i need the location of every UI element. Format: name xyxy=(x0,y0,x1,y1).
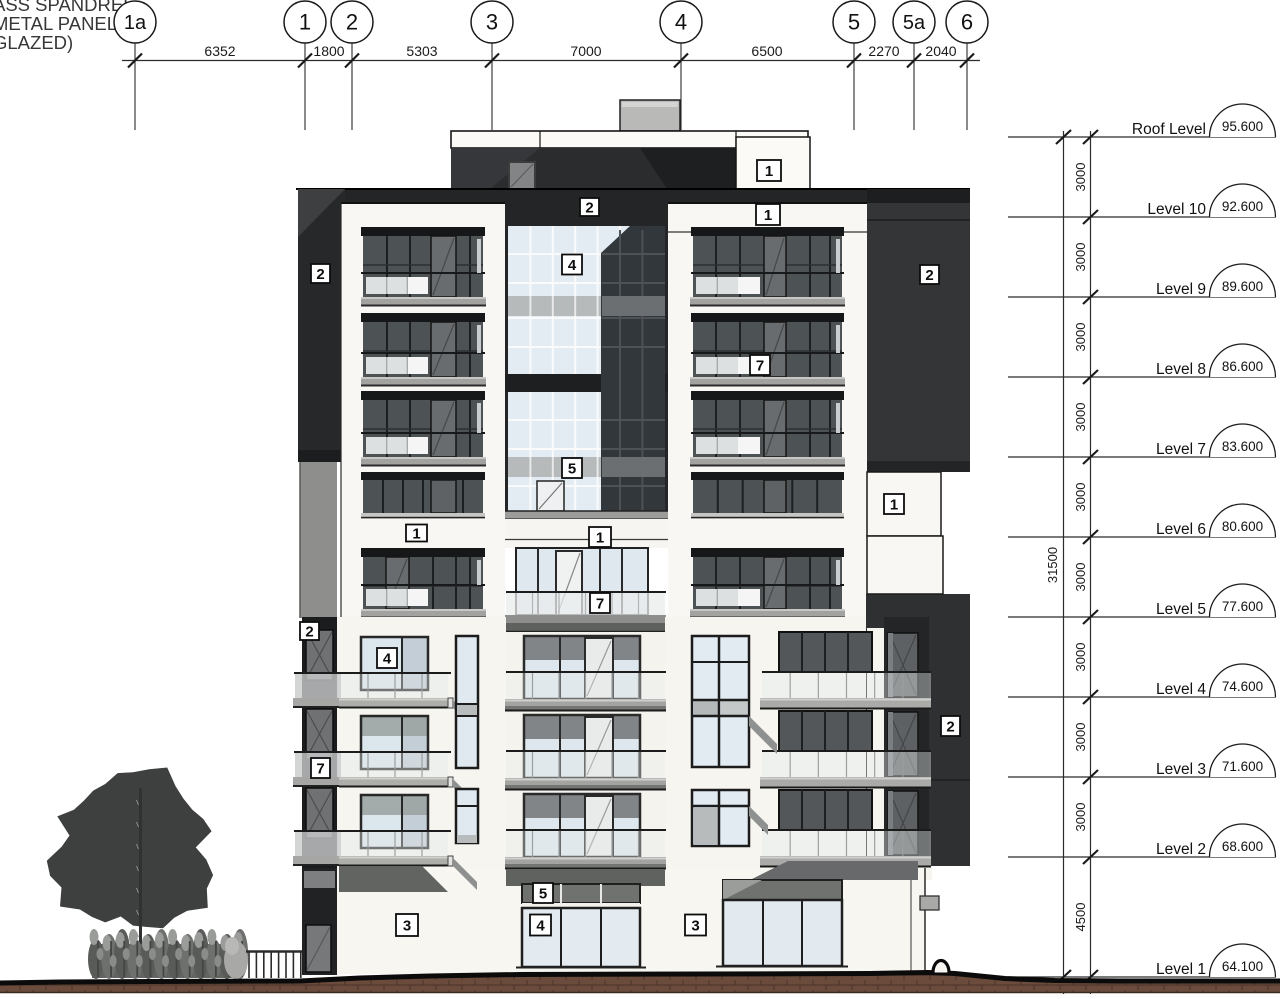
svg-text:31500: 31500 xyxy=(1045,547,1060,583)
svg-text:Level 9: Level 9 xyxy=(1156,281,1206,298)
svg-text:Level 6: Level 6 xyxy=(1156,521,1206,538)
svg-text:1: 1 xyxy=(764,207,772,224)
svg-text:5a: 5a xyxy=(903,12,926,34)
svg-text:4: 4 xyxy=(536,917,545,934)
svg-text:2270: 2270 xyxy=(868,43,899,59)
svg-text:68.600: 68.600 xyxy=(1222,839,1263,854)
svg-text:3: 3 xyxy=(486,10,498,35)
svg-text:3000: 3000 xyxy=(1073,643,1088,672)
svg-text:83.600: 83.600 xyxy=(1222,439,1263,454)
svg-text:3: 3 xyxy=(403,917,411,934)
svg-text:GLAZED): GLAZED) xyxy=(0,32,73,53)
svg-text:2: 2 xyxy=(346,10,358,35)
svg-text:Level 1: Level 1 xyxy=(1156,961,1206,978)
svg-text:95.600: 95.600 xyxy=(1222,119,1263,134)
svg-text:2: 2 xyxy=(925,267,933,284)
svg-text:Level 4: Level 4 xyxy=(1156,681,1206,698)
svg-text:6: 6 xyxy=(961,10,973,35)
svg-text:3: 3 xyxy=(691,917,699,934)
svg-text:2: 2 xyxy=(585,199,593,216)
svg-text:3000: 3000 xyxy=(1073,323,1088,352)
svg-text:64.100: 64.100 xyxy=(1222,959,1263,974)
svg-text:6500: 6500 xyxy=(751,43,782,59)
svg-text:Level 2: Level 2 xyxy=(1156,841,1206,858)
svg-text:3000: 3000 xyxy=(1073,483,1088,512)
svg-text:3000: 3000 xyxy=(1073,563,1088,592)
svg-text:74.600: 74.600 xyxy=(1222,679,1263,694)
svg-text:1: 1 xyxy=(596,529,604,546)
svg-text:5: 5 xyxy=(539,885,547,902)
svg-text:7: 7 xyxy=(756,357,764,374)
svg-text:3000: 3000 xyxy=(1073,803,1088,832)
svg-text:1: 1 xyxy=(890,496,898,513)
svg-text:Roof Level: Roof Level xyxy=(1132,121,1206,138)
svg-text:7: 7 xyxy=(316,760,324,777)
svg-text:2040: 2040 xyxy=(925,43,956,59)
svg-text:1800: 1800 xyxy=(313,43,344,59)
svg-text:5: 5 xyxy=(848,10,860,35)
svg-text:1: 1 xyxy=(412,525,420,542)
svg-text:1: 1 xyxy=(765,163,773,180)
svg-text:3000: 3000 xyxy=(1073,243,1088,272)
svg-text:80.600: 80.600 xyxy=(1222,519,1263,534)
svg-text:3000: 3000 xyxy=(1073,163,1088,192)
svg-text:1: 1 xyxy=(299,10,311,35)
svg-text:1a: 1a xyxy=(124,12,147,34)
svg-text:Level 5: Level 5 xyxy=(1156,601,1206,618)
svg-text:3000: 3000 xyxy=(1073,723,1088,752)
svg-text:4: 4 xyxy=(383,650,392,667)
svg-text:Level 3: Level 3 xyxy=(1156,761,1206,778)
svg-text:2: 2 xyxy=(946,718,954,735)
svg-text:7: 7 xyxy=(596,595,604,612)
svg-text:3000: 3000 xyxy=(1073,403,1088,432)
svg-text:Level 7: Level 7 xyxy=(1156,441,1206,458)
svg-text:2: 2 xyxy=(316,266,324,283)
svg-text:Level 8: Level 8 xyxy=(1156,361,1206,378)
svg-text:7000: 7000 xyxy=(570,43,601,59)
svg-text:86.600: 86.600 xyxy=(1222,359,1263,374)
svg-text:5303: 5303 xyxy=(406,43,437,59)
svg-text:4: 4 xyxy=(568,257,577,274)
svg-text:89.600: 89.600 xyxy=(1222,279,1263,294)
svg-text:4500: 4500 xyxy=(1073,903,1088,932)
svg-text:2: 2 xyxy=(305,623,313,640)
svg-text:77.600: 77.600 xyxy=(1222,599,1263,614)
svg-text:Level 10: Level 10 xyxy=(1147,201,1206,218)
svg-text:71.600: 71.600 xyxy=(1222,759,1263,774)
svg-text:5: 5 xyxy=(568,460,576,477)
svg-text:METAL PANEL: METAL PANEL xyxy=(0,13,117,34)
svg-text:4: 4 xyxy=(675,10,687,35)
svg-text:6352: 6352 xyxy=(204,43,235,59)
svg-text:92.600: 92.600 xyxy=(1222,199,1263,214)
